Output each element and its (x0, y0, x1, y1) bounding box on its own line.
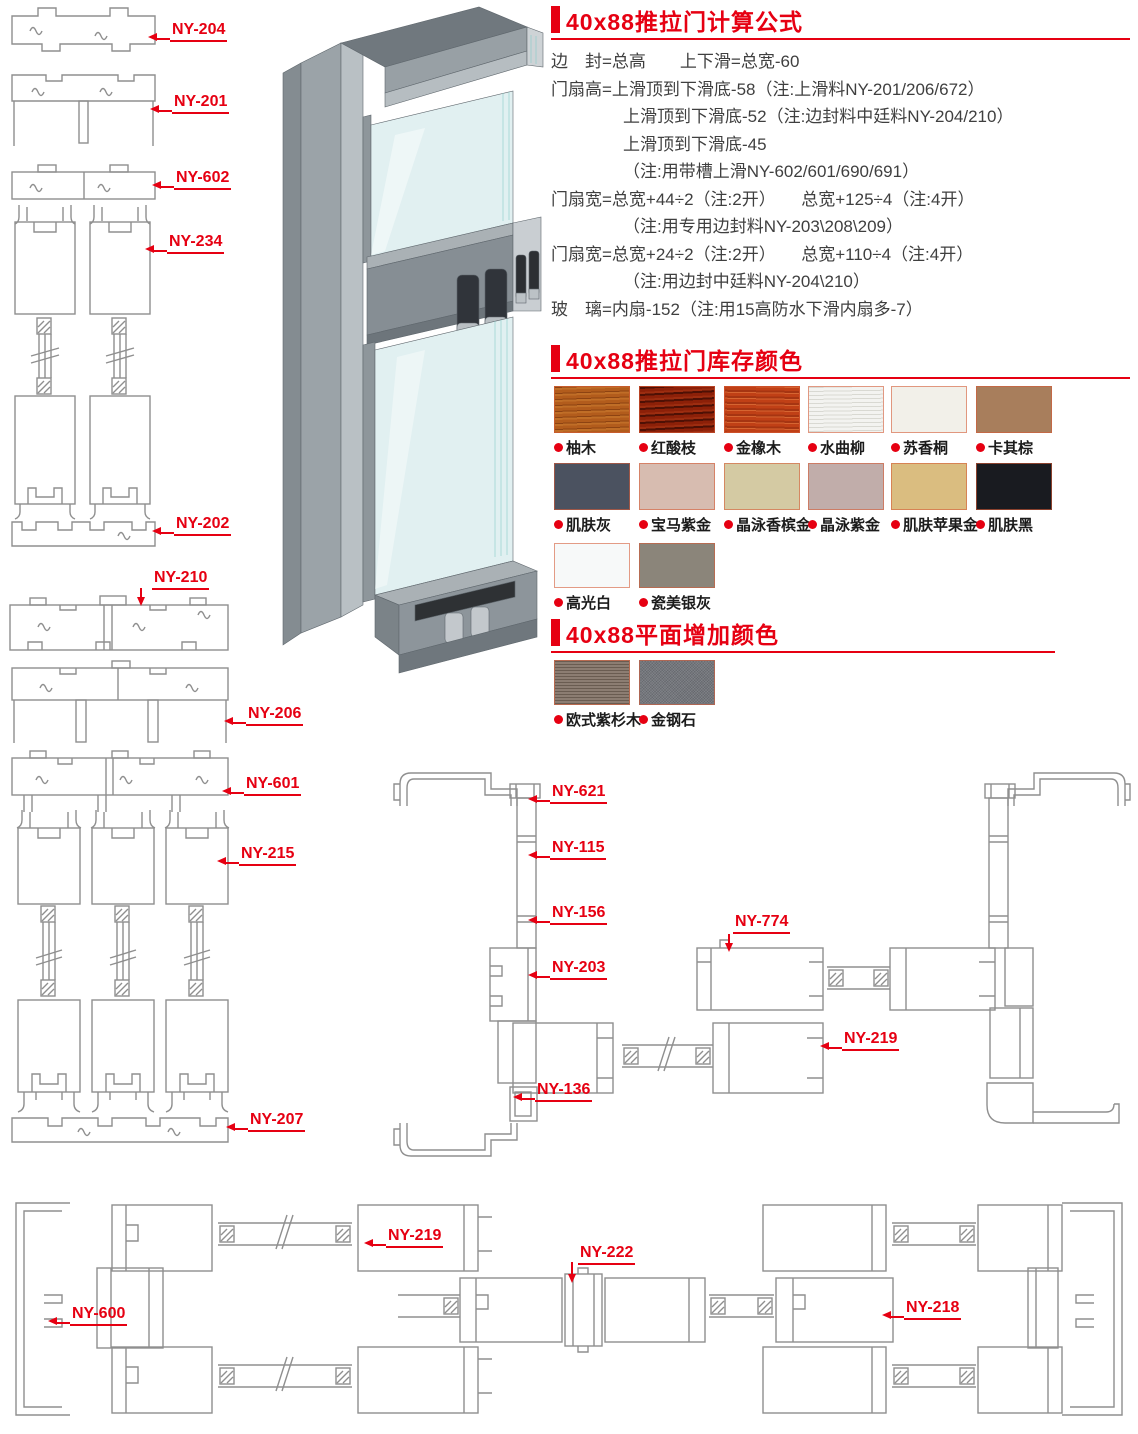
color-chip (891, 463, 967, 510)
color-chip (639, 660, 715, 705)
arrow-icon (364, 1239, 373, 1247)
sash-row-middle (398, 1268, 893, 1352)
color-swatch: 水曲柳 (808, 386, 892, 458)
arrow-icon (222, 787, 231, 795)
leader-line (159, 110, 172, 112)
formula-line: 门扇宽=总宽+44÷2（注:2开） 总宽+125÷4（注:4开） (551, 186, 1137, 214)
sash-row-upper (697, 940, 1033, 1010)
leader-line (829, 1047, 842, 1049)
color-chip (639, 463, 715, 510)
bullet-icon (891, 443, 900, 452)
formula-line: 上滑顶到下滑底-52（注:边封料中廷料NY-204/210） (551, 103, 1137, 131)
bullet-icon (808, 443, 817, 452)
leader-line (233, 722, 246, 724)
middle-assembly-drawings (390, 760, 1138, 1170)
drawing-ny-207 (12, 1118, 228, 1142)
color-swatch: 晶泳香槟金 (724, 463, 808, 535)
color-swatch: 肌肤灰 (554, 463, 638, 535)
drawing-ny-601 (12, 751, 228, 812)
arrow-icon (528, 971, 537, 979)
swatch-label: 宝马紫金 (651, 514, 711, 535)
swatch-label: 红酸枝 (651, 437, 696, 458)
arrow-icon (725, 943, 733, 952)
title-underline (551, 377, 1130, 379)
callout-label: NY-201 (172, 94, 229, 114)
arrow-icon (148, 33, 157, 41)
color-chip (808, 463, 884, 510)
callout-label: NY-210 (152, 570, 209, 590)
swatch-label: 金钢石 (651, 709, 696, 730)
color-chip (554, 660, 630, 705)
arrow-icon (226, 1123, 235, 1131)
color-swatch: 卡其棕 (976, 386, 1060, 458)
callout-label: NY-206 (246, 706, 303, 726)
arrow-icon (224, 717, 233, 725)
callout-label: NY-203 (550, 960, 607, 980)
color-chip (639, 543, 715, 588)
leader-line (537, 976, 550, 978)
title-bar-icon (551, 619, 560, 646)
callout-ny-774: NY-774 (733, 914, 790, 934)
arrow-icon (152, 181, 161, 189)
callout-ny-218: NY-218 (882, 1300, 961, 1320)
leader-line (57, 1322, 70, 1324)
drawing-ny-201 (12, 75, 155, 146)
callout-ny-136: NY-136 (513, 1082, 592, 1102)
leader-line (522, 1098, 535, 1100)
drawing-ny-234 (15, 205, 150, 519)
drawing-ny-202 (12, 522, 155, 546)
drawing-ny-210 (10, 596, 228, 650)
color-chip (891, 386, 967, 433)
right-frame-section (985, 773, 1130, 1123)
color-chip (554, 463, 630, 510)
color-swatch: 红酸枝 (639, 386, 723, 458)
arrow-icon (152, 527, 161, 535)
arrow-icon (48, 1317, 57, 1325)
drawing-ny-215 (17, 810, 229, 1112)
leader-line (373, 1244, 386, 1246)
callout-ny-115: NY-115 (528, 840, 606, 860)
leader-line (157, 38, 170, 40)
callout-label: NY-621 (550, 784, 607, 804)
color-swatch: 晶泳紫金 (808, 463, 892, 535)
callout-ny-222: NY-222 (578, 1245, 635, 1265)
color-swatch: 肌肤黑 (976, 463, 1060, 535)
arrow-icon (820, 1042, 829, 1050)
swatch-label: 晶泳紫金 (820, 514, 880, 535)
color-swatch: 金橡木 (724, 386, 808, 458)
callout-label: NY-601 (244, 776, 301, 796)
corner-render-3d (275, 5, 565, 685)
arrow-icon (568, 1274, 576, 1283)
color-swatch: 苏香桐 (891, 386, 975, 458)
arrow-icon (528, 795, 537, 803)
formula-line: （注:用带槽上滑NY-602/601/690/691） (551, 158, 1137, 186)
arrow-icon (145, 245, 154, 253)
callout-ny-156: NY-156 (528, 905, 607, 925)
formula-section-title: 40x88推拉门计算公式 (566, 3, 803, 37)
leader-line (226, 862, 239, 864)
bullet-icon (554, 443, 563, 452)
bullet-icon (724, 520, 733, 529)
callout-ny-234: NY-234 (145, 234, 224, 254)
color-swatch: 金钢石 (639, 660, 723, 730)
arrow-icon (137, 597, 145, 606)
formula-line: 玻 璃=内扇-152（注:用15高防水下滑内扇多-7） (551, 296, 1137, 324)
formula-line: 上滑顶到下滑底-45 (551, 131, 1137, 159)
callout-ny-621: NY-621 (528, 784, 607, 804)
callout-label: NY-219 (842, 1031, 899, 1051)
color-chip (724, 463, 800, 510)
swatch-label: 苏香桐 (903, 437, 948, 458)
callout-ny-602: NY-602 (152, 170, 231, 190)
bullet-icon (639, 598, 648, 607)
title-bar-icon (551, 6, 560, 33)
arrow-icon (528, 916, 537, 924)
catalog-page: NY-204 NY-201 NY-602 NY-234 NY-202 NY-21… (0, 0, 1138, 1434)
callout-label: NY-602 (174, 170, 231, 190)
callout-label: NY-218 (904, 1300, 961, 1320)
drawing-ny-206 (12, 661, 228, 743)
arrow-icon (528, 851, 537, 859)
formula-line: 门扇宽=总宽+24÷2（注:2开） 总宽+110÷4（注:4开） (551, 241, 1137, 269)
formula-line: 边 封=总高 上下滑=总宽-60 (551, 48, 1137, 76)
callout-label: NY-115 (550, 840, 606, 860)
leader-line (154, 250, 167, 252)
bullet-icon (554, 520, 563, 529)
bullet-icon (976, 443, 985, 452)
callout-ny-204: NY-204 (148, 22, 227, 42)
callout-ny-215: NY-215 (217, 846, 296, 866)
callout-ny-203: NY-203 (528, 960, 607, 980)
callout-label: NY-207 (248, 1112, 305, 1132)
color-chip (976, 386, 1052, 433)
color-chip (724, 386, 800, 433)
bullet-icon (554, 715, 563, 724)
arrow-icon (882, 1311, 891, 1319)
swatch-label: 欧式紫杉木 (566, 709, 641, 730)
drawing-ny-602 (12, 165, 155, 199)
callout-ny-202: NY-202 (152, 516, 231, 536)
callout-label: NY-202 (174, 516, 231, 536)
color-chip (976, 463, 1052, 510)
swatch-label: 金橡木 (736, 437, 781, 458)
stock-colors-section-title: 40x88推拉门库存颜色 (566, 342, 803, 376)
leader-line (231, 792, 244, 794)
leader-line (161, 186, 174, 188)
formula-line: 门扇高=上滑顶到下滑底-58（注:上滑料NY-201/206/672） (551, 76, 1137, 104)
color-chip (554, 543, 630, 588)
callout-ny-201: NY-201 (150, 94, 229, 114)
callout-label: NY-136 (535, 1082, 592, 1102)
swatch-label: 肌肤黑 (988, 514, 1033, 535)
callout-label: NY-219 (386, 1228, 443, 1248)
leader-line (235, 1128, 248, 1130)
leader-line (891, 1316, 904, 1318)
sash-row-bottom-left (112, 1347, 492, 1413)
arrow-icon (513, 1093, 522, 1101)
arrow-icon (217, 857, 226, 865)
color-swatch: 高光白 (554, 543, 638, 613)
formula-line: （注:用边封中廷料NY-204\210） (551, 268, 1137, 296)
callout-label: NY-774 (733, 914, 790, 934)
added-colors-section-title: 40x88平面增加颜色 (566, 616, 779, 650)
leader-line (537, 856, 550, 858)
formula-block: 边 封=总高 上下滑=总宽-60 门扇高=上滑顶到下滑底-58（注:上滑料NY-… (551, 48, 1137, 323)
swatch-label: 水曲柳 (820, 437, 865, 458)
callout-label: NY-156 (550, 905, 607, 925)
bullet-icon (639, 443, 648, 452)
swatch-label: 高光白 (566, 592, 611, 613)
callout-label: NY-600 (70, 1306, 127, 1326)
title-bar-icon (551, 345, 560, 372)
leader-line (537, 921, 550, 923)
callout-ny-207: NY-207 (226, 1112, 305, 1132)
bullet-icon (808, 520, 817, 529)
swatch-label: 晶泳香槟金 (736, 514, 811, 535)
swatch-label: 柚木 (566, 437, 596, 458)
sash-row-bottom-right (763, 1347, 1062, 1413)
leader-line (537, 800, 550, 802)
bottom-assembly-drawings (0, 1195, 1138, 1434)
color-swatch: 宝马紫金 (639, 463, 723, 535)
callout-label: NY-215 (239, 846, 296, 866)
swatch-label: 肌肤灰 (566, 514, 611, 535)
color-chip (639, 386, 715, 433)
bullet-icon (639, 520, 648, 529)
swatch-label: 瓷美银灰 (651, 592, 711, 613)
callout-label: NY-222 (578, 1245, 635, 1265)
arrow-icon (150, 105, 159, 113)
color-chip (554, 386, 630, 433)
callout-ny-210: NY-210 (152, 570, 209, 590)
color-swatch: 瓷美银灰 (639, 543, 723, 613)
color-swatch: 柚木 (554, 386, 638, 458)
title-underline (551, 651, 1055, 653)
callout-ny-219-bottom: NY-219 (364, 1228, 443, 1248)
formula-line: （注:用专用边封料NY-203\208\209） (551, 213, 1137, 241)
color-chip (808, 386, 884, 433)
callout-ny-600: NY-600 (48, 1306, 127, 1326)
right-jamb (1028, 1203, 1122, 1415)
bullet-icon (976, 520, 985, 529)
drawing-ny-204 (12, 8, 155, 51)
callout-ny-206: NY-206 (224, 706, 303, 726)
title-underline (551, 38, 1130, 40)
swatch-label: 卡其棕 (988, 437, 1033, 458)
color-swatch: 欧式紫杉木 (554, 660, 638, 730)
leader-line (161, 532, 174, 534)
callout-ny-219-mid: NY-219 (820, 1031, 899, 1051)
bullet-icon (639, 715, 648, 724)
swatch-label: 肌肤苹果金 (903, 514, 978, 535)
bullet-icon (891, 520, 900, 529)
bullet-icon (554, 598, 563, 607)
bullet-icon (724, 443, 733, 452)
callout-label: NY-204 (170, 22, 227, 42)
color-swatch: 肌肤苹果金 (891, 463, 975, 535)
sash-row-top-right (763, 1205, 1062, 1271)
callout-label: NY-234 (167, 234, 224, 254)
callout-ny-601: NY-601 (222, 776, 301, 796)
